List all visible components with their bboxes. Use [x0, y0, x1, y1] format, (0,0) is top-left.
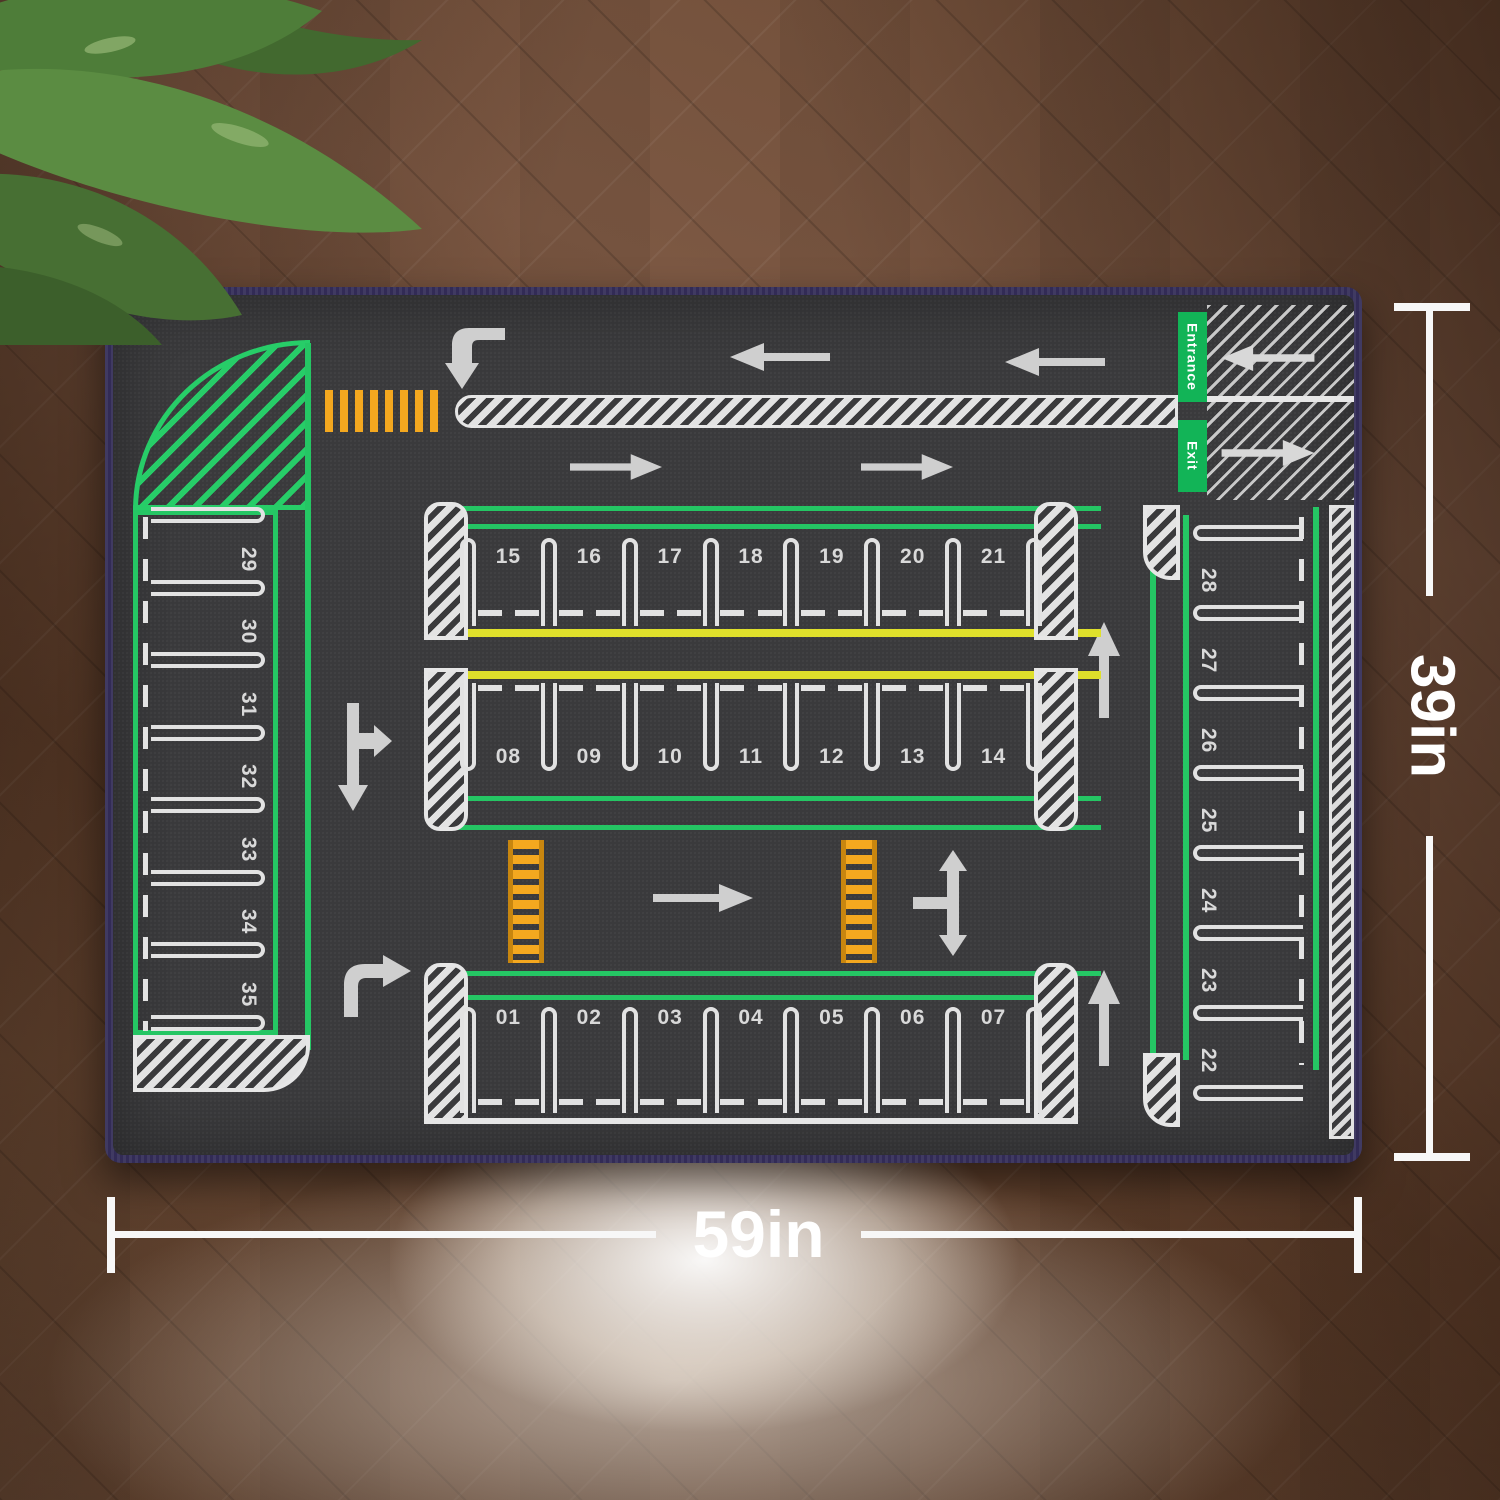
- exit-sign: Exit: [1178, 420, 1207, 492]
- lane-dash: [515, 1099, 539, 1105]
- lane-dash: [801, 610, 825, 616]
- row-yellow-line: [445, 629, 1101, 637]
- parking-divider: [151, 507, 265, 523]
- lane-dash: [720, 1099, 744, 1105]
- parking-space-number: 02: [561, 1007, 617, 1029]
- parking-divider: [1193, 605, 1303, 621]
- parking-space-number: 13: [885, 746, 941, 768]
- parking-space-number: 04: [723, 1007, 779, 1029]
- parking-divider: [622, 1007, 638, 1113]
- parking-space-number: 28: [1195, 555, 1219, 607]
- lane-dash: [758, 1099, 782, 1105]
- lane-dash: [640, 610, 664, 616]
- mat-surface: Entrance Exit: [113, 295, 1354, 1155]
- lane-dash: [801, 685, 825, 691]
- parking-divider: [1193, 765, 1303, 781]
- parking-space-number: 27: [1195, 635, 1219, 687]
- lane-dash: [596, 610, 620, 616]
- parking-space-number: 12: [804, 746, 860, 768]
- lane-dash: [1000, 1099, 1024, 1105]
- left-column-dashed-line: [143, 517, 148, 1031]
- right-median-cap: [1143, 505, 1180, 580]
- parking-space-number: 30: [235, 606, 259, 658]
- ladder-crosswalk: [841, 840, 877, 963]
- parking-divider: [703, 1007, 719, 1113]
- right-arrow-icon: [653, 883, 753, 913]
- height-dim-cap-bottom: [1394, 1153, 1470, 1161]
- height-dim-label: 39in: [1396, 600, 1468, 832]
- parking-divider: [783, 683, 799, 771]
- width-dim-cap-right: [1354, 1197, 1362, 1273]
- lane-dash: [515, 685, 539, 691]
- lane-dash: [478, 1099, 502, 1105]
- lane-dash: [838, 685, 862, 691]
- lane-dash: [1000, 685, 1024, 691]
- lane-dash: [515, 610, 539, 616]
- parking-divider: [622, 538, 638, 626]
- parking-divider: [864, 538, 880, 626]
- left-column-end-cap: [133, 1035, 310, 1092]
- parking-divider: [1026, 538, 1042, 626]
- parking-divider: [460, 538, 476, 626]
- parking-divider: [1193, 1005, 1303, 1021]
- parking-divider: [945, 1007, 961, 1113]
- left-arrow-icon: [730, 343, 830, 371]
- row-top-green-line: [445, 971, 1101, 976]
- top-road-median: [455, 395, 1178, 428]
- parking-space-number: 06: [885, 1007, 941, 1029]
- lane-dash: [596, 685, 620, 691]
- right-arrow-icon: [570, 453, 662, 481]
- parking-divider: [864, 683, 880, 771]
- lane-dash: [963, 1099, 987, 1105]
- width-dim-label: 59in: [656, 1196, 861, 1272]
- lane-dash: [758, 685, 782, 691]
- height-dim-line: [1426, 836, 1433, 1158]
- parking-space-number: 11: [723, 746, 779, 768]
- row-baseline: [424, 1118, 1078, 1124]
- parking-divider: [541, 683, 557, 771]
- parking-divider: [1193, 845, 1303, 861]
- parking-divider: [1026, 1007, 1042, 1113]
- lane-dash: [1000, 610, 1024, 616]
- lane-dash: [720, 610, 744, 616]
- parking-space-number: 23: [1195, 955, 1219, 1007]
- parking-space-number: 21: [966, 546, 1022, 568]
- width-dim-line: [861, 1231, 1358, 1238]
- parking-space-number: 03: [642, 1007, 698, 1029]
- parking-space-number: 35: [235, 969, 259, 1021]
- parking-space-number: 33: [235, 824, 259, 876]
- crosswalk: [325, 390, 440, 432]
- parking-space-number: 31: [235, 678, 259, 730]
- parking-space-number: 14: [966, 746, 1022, 768]
- lane-dash: [919, 1099, 943, 1105]
- row-bottom-green-line: [445, 825, 1101, 830]
- parking-space-number: 20: [885, 546, 941, 568]
- right-edge-hatch-strip: [1329, 505, 1354, 1139]
- left-green-lane-line: [305, 343, 311, 1050]
- right-green-median-line: [1150, 515, 1156, 1060]
- green-corner-island: [133, 340, 310, 510]
- row-top-green-line: [445, 524, 1101, 529]
- exit-right-arrow-icon: [1219, 440, 1317, 466]
- parking-divider: [703, 683, 719, 771]
- lane-dash: [478, 610, 502, 616]
- parking-space-number: 01: [480, 1007, 536, 1029]
- lane-dash: [919, 610, 943, 616]
- parking-divider: [460, 1007, 476, 1113]
- width-dim-line: [111, 1231, 656, 1238]
- row-yellow-line: [445, 671, 1101, 679]
- branch-right-down-arrow-icon: [338, 703, 392, 811]
- lane-dash: [559, 685, 583, 691]
- parking-space-number: 16: [561, 546, 617, 568]
- parking-divider: [1193, 1085, 1303, 1101]
- parking-space-number: 10: [642, 746, 698, 768]
- lane-dash: [882, 1099, 906, 1105]
- entrance-sign: Entrance: [1178, 312, 1207, 402]
- up-arrow-icon: [1088, 970, 1120, 1066]
- right-median-cap: [1143, 1053, 1180, 1127]
- row-top-green-line: [468, 995, 1034, 1000]
- parking-space-number: 17: [642, 546, 698, 568]
- lane-dash: [559, 610, 583, 616]
- lane-dash: [640, 685, 664, 691]
- height-dim-line: [1426, 306, 1433, 596]
- lane-dash: [677, 685, 701, 691]
- parking-space-number: 05: [804, 1007, 860, 1029]
- parking-divider: [1193, 925, 1303, 941]
- lane-dash: [596, 1099, 620, 1105]
- right-column-dashed-line: [1299, 517, 1304, 1065]
- ladder-crosswalk: [508, 840, 544, 963]
- parking-divider: [783, 1007, 799, 1113]
- row-top-green-line: [445, 506, 1101, 511]
- lane-dash: [838, 1099, 862, 1105]
- lane-dash: [559, 1099, 583, 1105]
- right-edge-green-line: [1313, 507, 1319, 1070]
- parking-divider: [1193, 525, 1303, 541]
- parking-divider: [460, 683, 476, 771]
- parking-space-number: 07: [966, 1007, 1022, 1029]
- parking-divider: [945, 683, 961, 771]
- parking-space-number: 32: [235, 751, 259, 803]
- parking-space-number: 29: [235, 533, 259, 585]
- parking-space-number: 18: [723, 546, 779, 568]
- row-bottom-green-line: [445, 796, 1101, 801]
- lane-dash: [882, 685, 906, 691]
- lane-dash: [801, 1099, 825, 1105]
- right-green-median-line: [1183, 515, 1189, 1060]
- parking-space-number: 34: [235, 896, 259, 948]
- entrance-label: Entrance: [1185, 323, 1201, 391]
- turn-right-arrow-icon: [341, 955, 413, 1017]
- lane-dash: [882, 610, 906, 616]
- parking-space-number: 24: [1195, 875, 1219, 927]
- lane-dash: [677, 1099, 701, 1105]
- three-way-arrow-icon: [913, 850, 975, 956]
- parking-divider: [1026, 683, 1042, 771]
- parking-divider: [945, 538, 961, 626]
- right-arrow-icon: [861, 453, 953, 481]
- parking-divider: [622, 683, 638, 771]
- lane-dash: [478, 685, 502, 691]
- parking-divider: [703, 538, 719, 626]
- lane-dash: [838, 610, 862, 616]
- parking-divider: [783, 538, 799, 626]
- ramp-divider-line: [1207, 396, 1354, 402]
- lane-dash: [919, 685, 943, 691]
- parking-divider: [541, 1007, 557, 1113]
- parking-space-number: 19: [804, 546, 860, 568]
- parking-space-number: 25: [1195, 795, 1219, 847]
- parking-space-number: 09: [561, 746, 617, 768]
- left-arrow-icon: [1005, 348, 1105, 376]
- lane-dash: [677, 610, 701, 616]
- lane-dash: [758, 610, 782, 616]
- lane-dash: [963, 685, 987, 691]
- parking-space-number: 22: [1195, 1035, 1219, 1087]
- lane-dash: [963, 610, 987, 616]
- parking-divider: [864, 1007, 880, 1113]
- parking-space-number: 08: [480, 746, 536, 768]
- parking-divider: [541, 538, 557, 626]
- exit-label: Exit: [1185, 441, 1201, 471]
- parking-space-number: 26: [1195, 715, 1219, 767]
- entrance-exit-ramp: [1207, 305, 1354, 500]
- parking-divider: [1193, 685, 1303, 701]
- parking-playmat: Entrance Exit: [105, 287, 1362, 1163]
- entrance-left-arrow-icon: [1219, 345, 1317, 371]
- parking-space-number: 15: [480, 546, 536, 568]
- lane-dash: [720, 685, 744, 691]
- lane-dash: [640, 1099, 664, 1105]
- plant-leaves: [0, 0, 460, 345]
